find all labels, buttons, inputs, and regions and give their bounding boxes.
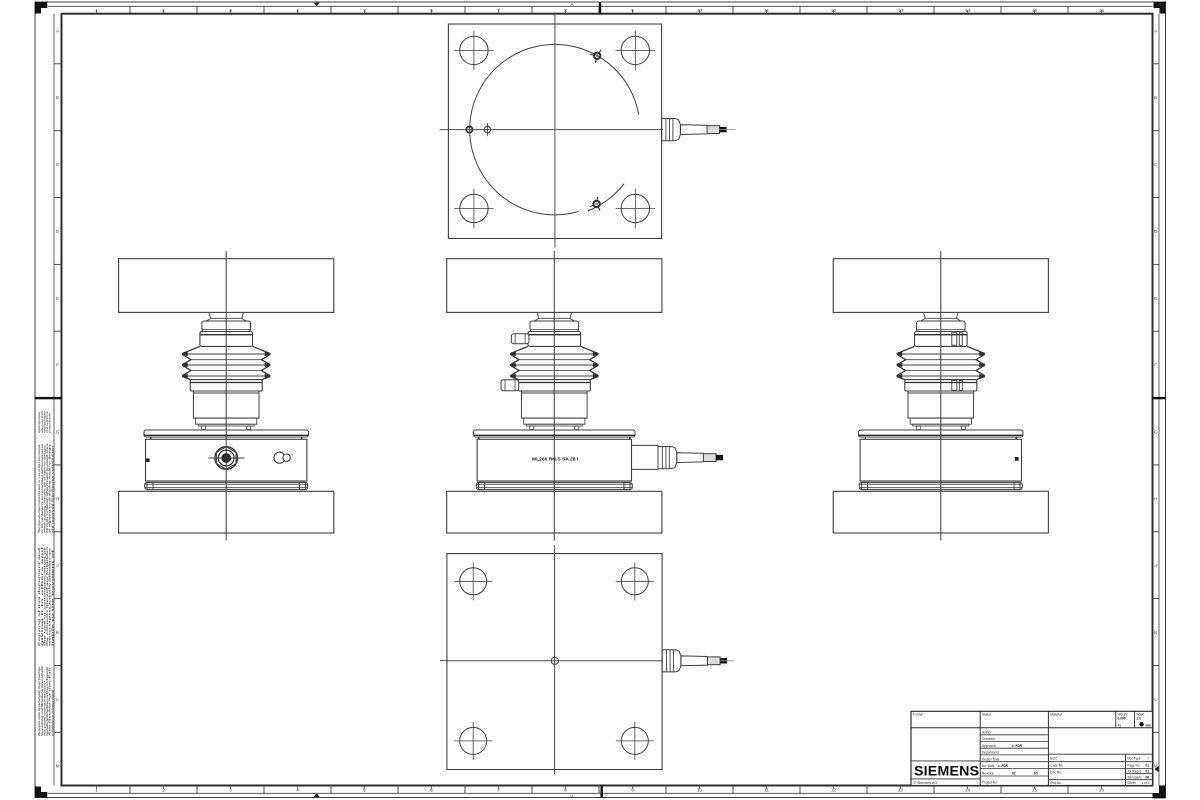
svg-text:D: D <box>1154 229 1158 234</box>
svg-text:6: 6 <box>430 788 433 793</box>
svg-text:Format: Format <box>913 712 923 716</box>
svg-text:10: 10 <box>697 788 703 793</box>
svg-text:13: 13 <box>898 8 904 13</box>
svg-text:liable to the payment of: liable to the payment of <box>51 549 54 646</box>
svg-text:02: 02 <box>1012 772 1016 776</box>
svg-text:Checked: Checked <box>982 737 995 741</box>
svg-text:14: 14 <box>965 8 971 13</box>
svg-text:12: 12 <box>831 788 837 793</box>
svg-text:Page No: Page No <box>1127 764 1140 768</box>
svg-text:11: 11 <box>764 8 769 13</box>
svg-text:C: C <box>1154 162 1158 167</box>
svg-text:01: 01 <box>1145 769 1149 773</box>
svg-text:4: 4 <box>296 788 299 793</box>
svg-text:8: 8 <box>564 8 567 13</box>
svg-text:F: F <box>56 363 59 368</box>
svg-text:© Siemens AG: © Siemens AG <box>914 781 938 785</box>
svg-text:M: M <box>56 764 60 769</box>
svg-text:16: 16 <box>1099 8 1105 13</box>
svg-text:c. FDR: c. FDR <box>1012 744 1023 748</box>
svg-text:are reserved Alle Rechte vorbe: are reserved Alle Rechte vorbehalten <box>51 445 54 533</box>
svg-text:1: 1 <box>95 8 98 13</box>
svg-text:B: B <box>56 95 59 100</box>
svg-text:15: 15 <box>1032 8 1038 13</box>
svg-text:12: 12 <box>831 8 837 13</box>
svg-text:Tot Pages: Tot Pages <box>1127 769 1142 773</box>
svg-text:SIEMENS: SIEMENS <box>914 763 979 779</box>
svg-text:7: 7 <box>497 8 500 13</box>
svg-text:H: H <box>1154 496 1157 501</box>
svg-text:Department: Department <box>982 751 999 755</box>
svg-text:9: 9 <box>631 788 634 793</box>
svg-text:1 of 1: 1 of 1 <box>1142 781 1150 785</box>
svg-text:Project No: Project No <box>982 781 997 785</box>
svg-text:2: 2 <box>162 8 165 13</box>
svg-text:E: E <box>1154 296 1157 301</box>
svg-text:/: / <box>1148 756 1149 760</box>
svg-text:Doc Type: Doc Type <box>1127 756 1141 760</box>
svg-text:G: G <box>56 430 60 435</box>
svg-text:0.000: 0.000 <box>1118 717 1126 721</box>
svg-text:Design Date: Design Date <box>982 757 1000 761</box>
svg-text:kg: kg <box>1118 723 1122 727</box>
svg-text:16: 16 <box>1099 788 1105 793</box>
svg-text:Arr. Date: Arr. Date <box>982 764 995 768</box>
svg-text:6: 6 <box>430 8 433 13</box>
svg-text:Author: Author <box>982 731 992 735</box>
svg-text:Ord No: Ord No <box>1050 781 1061 785</box>
svg-text:J: J <box>1155 563 1157 568</box>
svg-text:01: 01 <box>1145 764 1149 768</box>
svg-text:Status: Status <box>982 712 991 716</box>
svg-text:B: B <box>1154 95 1157 100</box>
svg-text:Revision: Revision <box>982 772 994 776</box>
svg-text:G: G <box>1154 430 1158 435</box>
svg-text:13: 13 <box>898 788 904 793</box>
svg-text:00: 00 <box>1145 775 1149 779</box>
svg-text:Case No: Case No <box>1050 764 1063 768</box>
svg-text:Approved: Approved <box>982 744 996 748</box>
svg-text:F5: F5 <box>1034 772 1038 776</box>
svg-text:5: 5 <box>363 8 366 13</box>
svg-text:E: E <box>56 296 59 301</box>
svg-text:Material: Material <box>1050 712 1062 716</box>
svg-text:Sheet: Sheet <box>1127 781 1135 785</box>
svg-text:8: 8 <box>564 788 567 793</box>
svg-text:Tot Inserts: Tot Inserts <box>1127 775 1142 779</box>
svg-text:4: 4 <box>296 8 299 13</box>
svg-text:L: L <box>56 697 59 702</box>
svg-text:Fall der Patenterteilung oder: Fall der Patenterteilung oder GM-Eintrag… <box>49 413 52 433</box>
svg-text:c. FDR: c. FDR <box>998 764 1009 768</box>
svg-text:F: F <box>1154 363 1157 368</box>
svg-text:9: 9 <box>631 8 634 13</box>
svg-text:der Patenterteilung oder GM-Ei: der Patenterteilung oder GM-Eintragung v… <box>51 690 54 736</box>
svg-text:Doc No: Doc No <box>1050 771 1061 775</box>
svg-text:mm: mm <box>1146 723 1152 727</box>
svg-text:3: 3 <box>229 8 232 13</box>
svg-text:J: J <box>56 563 58 568</box>
svg-text:5: 5 <box>363 788 366 793</box>
svg-text:14: 14 <box>965 788 971 793</box>
svg-text:1:1: 1:1 <box>1136 716 1141 720</box>
svg-text:15: 15 <box>1032 788 1038 793</box>
svg-text:WL260 RN-S SA 28 t: WL260 RN-S SA 28 t <box>532 457 579 463</box>
svg-text:11: 11 <box>764 788 769 793</box>
svg-text:1: 1 <box>95 788 98 793</box>
svg-text:10: 10 <box>697 8 703 13</box>
svg-text:L: L <box>1154 697 1157 702</box>
svg-text:2: 2 <box>162 788 165 793</box>
svg-text:7: 7 <box>497 788 500 793</box>
svg-text:DCC: DCC <box>1050 756 1058 760</box>
svg-text:H: H <box>56 496 59 501</box>
svg-text:3: 3 <box>229 788 232 793</box>
